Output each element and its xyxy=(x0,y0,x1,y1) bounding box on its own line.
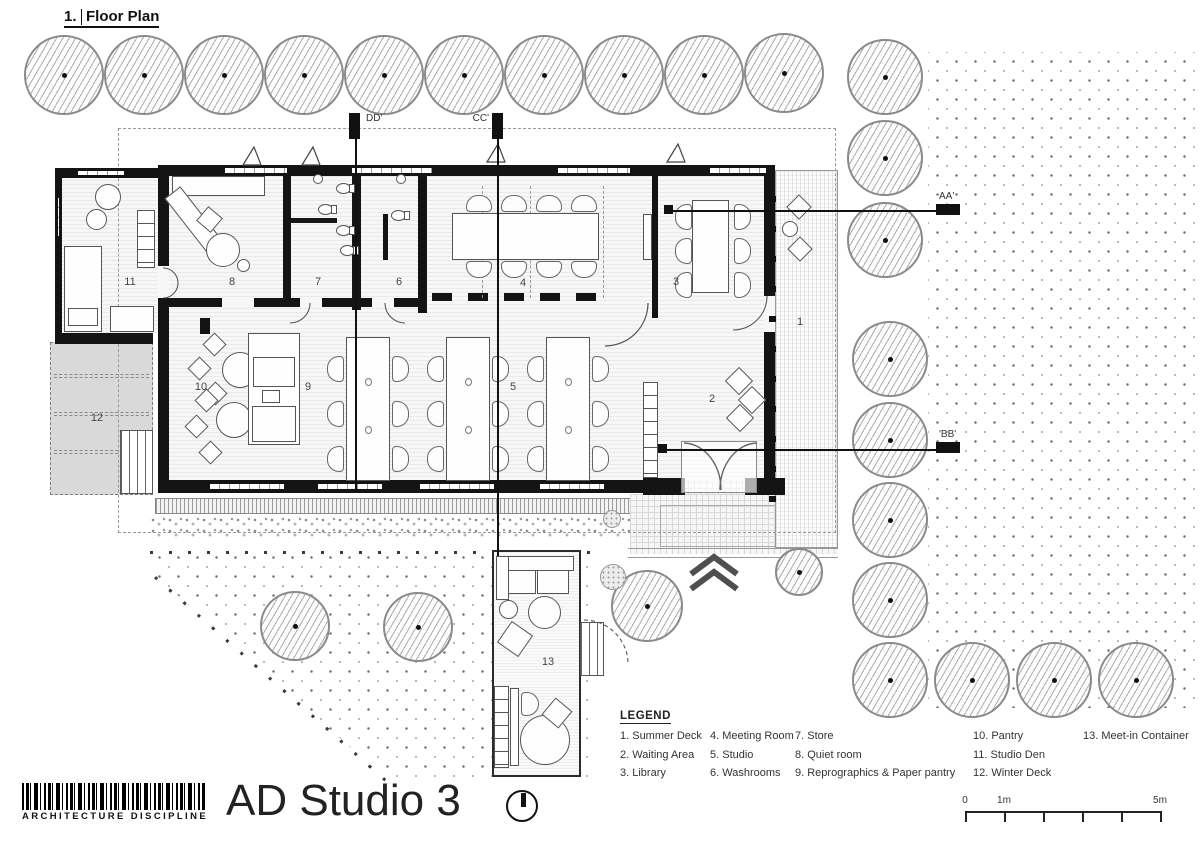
toilet-tank xyxy=(353,246,359,255)
window xyxy=(210,482,284,491)
firm-name: ARCHITECTURE DISCIPLINE xyxy=(22,811,208,822)
legend-title: LEGEND xyxy=(620,710,671,724)
legend-item: 13. Meet-in Container xyxy=(1083,730,1189,749)
legend-item: 1. Summer Deck xyxy=(620,730,702,749)
scale-bar: 01m5m xyxy=(965,794,1165,834)
window xyxy=(56,198,61,236)
chair xyxy=(327,401,344,427)
legend-item: 9. Reprographics & Paper pantry xyxy=(795,767,955,786)
partition-track xyxy=(603,186,604,298)
legend-item: 6. Washrooms xyxy=(710,767,794,786)
chair xyxy=(427,401,444,427)
round-table xyxy=(216,402,252,438)
locker-unit xyxy=(468,293,488,301)
locker-unit xyxy=(504,293,524,301)
chair xyxy=(527,446,544,472)
dot-paving-right xyxy=(928,52,1198,708)
chair xyxy=(327,446,344,472)
north-arrow-icon xyxy=(506,790,538,822)
chair xyxy=(675,204,692,230)
window xyxy=(318,482,382,491)
studio-table xyxy=(346,337,390,481)
wall xyxy=(418,165,427,313)
door-opening xyxy=(158,266,169,298)
window xyxy=(225,166,287,175)
stool xyxy=(237,259,250,272)
legend-column: 1. Summer Deck2. Waiting Area3. Library xyxy=(620,730,702,786)
scale-tick xyxy=(1043,811,1045,822)
scale-tick xyxy=(1004,811,1006,822)
window xyxy=(710,166,766,175)
entrance-doorframe xyxy=(681,441,757,493)
repro-equipment xyxy=(252,406,296,442)
chair xyxy=(501,195,527,212)
chair xyxy=(675,238,692,264)
window xyxy=(558,166,630,175)
sofa xyxy=(496,556,509,600)
wall xyxy=(283,170,291,305)
deck-columns xyxy=(769,196,776,526)
chair xyxy=(536,195,562,212)
shelf xyxy=(137,210,155,268)
legend-column: 4. Meeting Room5. Studio6. Washrooms xyxy=(710,730,794,786)
sofa xyxy=(498,556,574,571)
legend-item: 2. Waiting Area xyxy=(620,749,702,768)
legend-item: 8. Quiet room xyxy=(795,749,955,768)
scale-tick xyxy=(965,811,967,822)
legend-column: 13. Meet-in Container xyxy=(1083,730,1189,749)
toilet-tank xyxy=(349,226,355,235)
chair xyxy=(95,184,121,210)
chair xyxy=(327,356,344,382)
wall xyxy=(383,214,388,260)
locker-unit xyxy=(576,293,596,301)
container-steps xyxy=(580,622,604,676)
scale-label: 1m xyxy=(997,795,1011,806)
legend-item: 5. Studio xyxy=(710,749,794,768)
bench xyxy=(110,306,154,332)
wall xyxy=(55,168,62,344)
wall xyxy=(652,173,658,318)
shelf xyxy=(494,686,509,768)
door-opening xyxy=(222,298,254,307)
locker-unit xyxy=(540,293,560,301)
scale-label: 0 xyxy=(962,795,968,806)
window xyxy=(540,482,604,491)
chair xyxy=(427,356,444,382)
scale-label: 5m xyxy=(1153,795,1167,806)
chair xyxy=(427,446,444,472)
sofa xyxy=(537,570,569,594)
toilet-tank xyxy=(349,184,355,193)
floor-plan-sheet: 1. Floor Plan 12345678910111213 DD'CC'AA… xyxy=(0,0,1200,848)
wall xyxy=(158,165,169,483)
scale-bar-line xyxy=(965,811,1161,813)
desk xyxy=(510,688,519,766)
door-opening xyxy=(372,298,394,307)
wall xyxy=(285,218,337,223)
path-edge-line xyxy=(628,557,838,558)
door-opening xyxy=(300,298,322,307)
legend-item: 10. Pantry xyxy=(973,730,1051,749)
chair xyxy=(86,209,107,230)
pillow xyxy=(68,308,98,326)
window xyxy=(420,482,494,491)
locker-unit xyxy=(432,293,452,301)
wall xyxy=(55,333,153,344)
barcode-logo xyxy=(22,783,206,810)
legend-column: 7. Store8. Quiet room9. Reprographics & … xyxy=(795,730,955,786)
legend-item: 11. Studio Den xyxy=(973,749,1051,768)
round-table xyxy=(528,596,561,629)
chair xyxy=(527,401,544,427)
toilet-tank xyxy=(331,205,337,214)
chair xyxy=(466,195,492,212)
path-edge-line xyxy=(628,548,838,549)
stool xyxy=(499,600,518,619)
chair xyxy=(571,195,597,212)
chair xyxy=(527,356,544,382)
window xyxy=(352,166,432,175)
wall xyxy=(200,318,210,334)
legend-item: 3. Library xyxy=(620,767,702,786)
repro-equipment xyxy=(253,357,295,387)
sink xyxy=(313,174,323,184)
repro-equipment xyxy=(262,390,280,403)
library-table xyxy=(692,200,729,293)
legend-item: 4. Meeting Room xyxy=(710,730,794,749)
sink xyxy=(396,174,406,184)
north-needle xyxy=(521,793,526,807)
scale-tick xyxy=(1082,811,1084,822)
toilet-tank xyxy=(404,211,410,220)
legend-column: 10. Pantry11. Studio Den12. Winter Deck xyxy=(973,730,1051,786)
scale-tick xyxy=(1121,811,1123,822)
lounge-chair xyxy=(782,221,798,237)
studio-table xyxy=(546,337,590,481)
wall xyxy=(643,478,685,495)
meeting-table xyxy=(452,213,599,260)
shelf xyxy=(643,382,658,478)
chair xyxy=(675,272,692,298)
window xyxy=(78,169,124,177)
legend: LEGEND 1. Summer Deck2. Waiting Area3. L… xyxy=(620,706,671,724)
legend-item: 12. Winter Deck xyxy=(973,767,1051,786)
legend-item: 7. Store xyxy=(795,730,955,749)
scale-tick xyxy=(1160,811,1162,822)
studio-table xyxy=(446,337,490,481)
whiteboard xyxy=(643,214,652,260)
round-table xyxy=(206,233,240,267)
